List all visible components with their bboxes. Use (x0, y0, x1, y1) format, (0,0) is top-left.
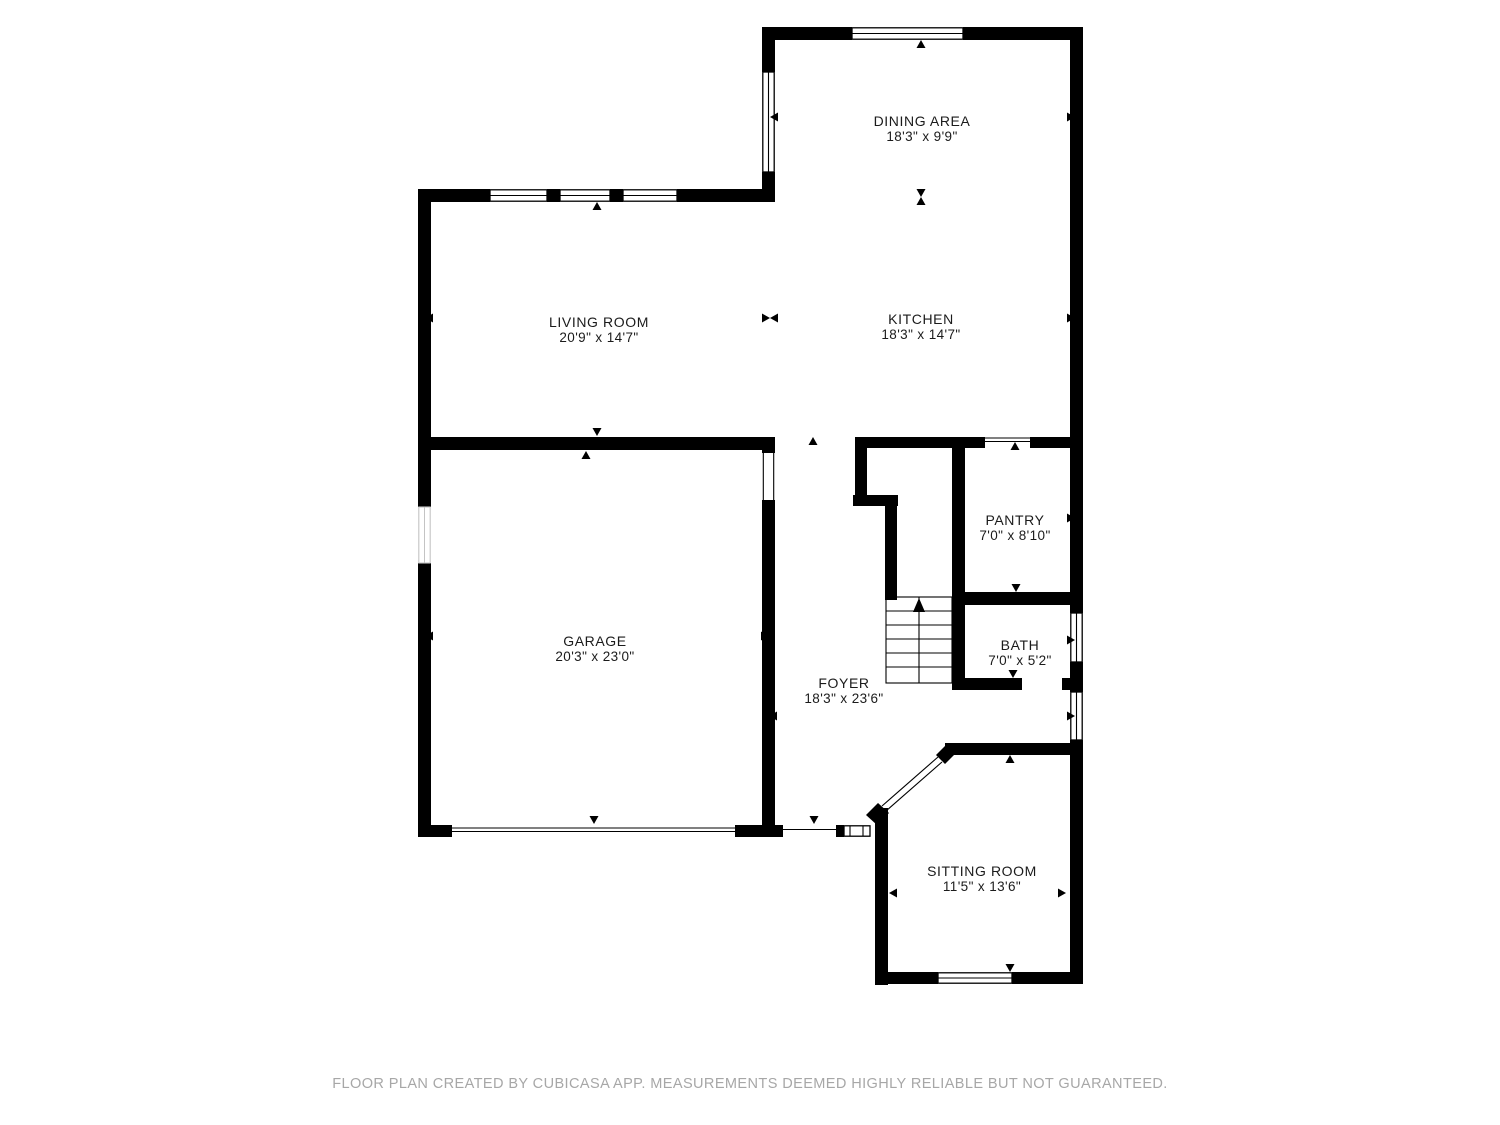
doorway-opening (985, 438, 1030, 442)
floor-plan-canvas: DINING AREA 18'3" x 9'9" LIVING ROOM 20'… (0, 0, 1500, 1125)
measure-arrow (917, 40, 926, 48)
garage-door (452, 828, 735, 832)
measure-arrow (917, 189, 926, 197)
room-label-sitting-room: SITTING ROOM (927, 863, 1037, 879)
doorway-opening (763, 453, 773, 500)
room-dims-kitchen: 18'3" x 14'7" (881, 327, 960, 342)
measure-arrow (1012, 584, 1021, 592)
measure-arrow (1006, 964, 1015, 972)
front-door (844, 826, 870, 836)
room-dims-sitting-room: 11'5" x 13'6" (943, 879, 1021, 894)
window (623, 190, 677, 201)
measure-arrow (770, 314, 778, 323)
window (560, 190, 610, 201)
windows-and-doors (419, 28, 1082, 983)
footer-disclaimer: FLOOR PLAN CREATED BY CUBICASA APP. MEAS… (23, 1075, 1478, 1092)
stairs-up-arrow (913, 598, 925, 612)
room-label-pantry: PANTRY (985, 512, 1044, 528)
measure-arrow (593, 202, 602, 210)
window (490, 190, 547, 201)
measure-arrow (889, 889, 897, 898)
window (1071, 613, 1082, 662)
measure-arrow (810, 816, 819, 824)
room-dims-garage: 20'3" x 23'0" (555, 649, 634, 664)
room-dims-bath: 7'0" x 5'2" (988, 653, 1051, 668)
room-dims-living-room: 20'9" x 14'7" (559, 330, 638, 345)
diagonal-opening (882, 757, 942, 811)
measure-arrow (1009, 670, 1018, 678)
window (419, 507, 430, 563)
room-dims-dining-area: 18'3" x 9'9" (886, 129, 957, 144)
room-dims-pantry: 7'0" x 8'10" (979, 528, 1050, 543)
room-labels: DINING AREA 18'3" x 9'9" LIVING ROOM 20'… (549, 113, 1052, 894)
room-label-foyer: FOYER (818, 675, 869, 691)
measure-arrow (1006, 755, 1015, 763)
measure-arrow (582, 451, 591, 459)
staircase (886, 597, 952, 683)
window (938, 973, 1012, 983)
walls (418, 27, 1083, 985)
room-dims-foyer: 18'3" x 23'6" (804, 691, 883, 706)
room-label-bath: BATH (1001, 637, 1040, 653)
measure-arrow (809, 437, 818, 445)
measure-arrow (917, 197, 926, 205)
room-label-living-room: LIVING ROOM (549, 314, 649, 330)
measure-arrow (593, 428, 602, 436)
measure-arrow (590, 816, 599, 824)
room-label-dining-area: DINING AREA (874, 113, 971, 129)
floor-plan-page: DINING AREA 18'3" x 9'9" LIVING ROOM 20'… (0, 0, 1500, 1125)
measure-arrow (762, 314, 770, 323)
room-label-garage: GARAGE (563, 633, 627, 649)
measure-arrow (1058, 889, 1066, 898)
measure-arrow (1011, 442, 1020, 450)
room-label-kitchen: KITCHEN (888, 311, 954, 327)
window (852, 28, 963, 39)
window (763, 72, 774, 172)
